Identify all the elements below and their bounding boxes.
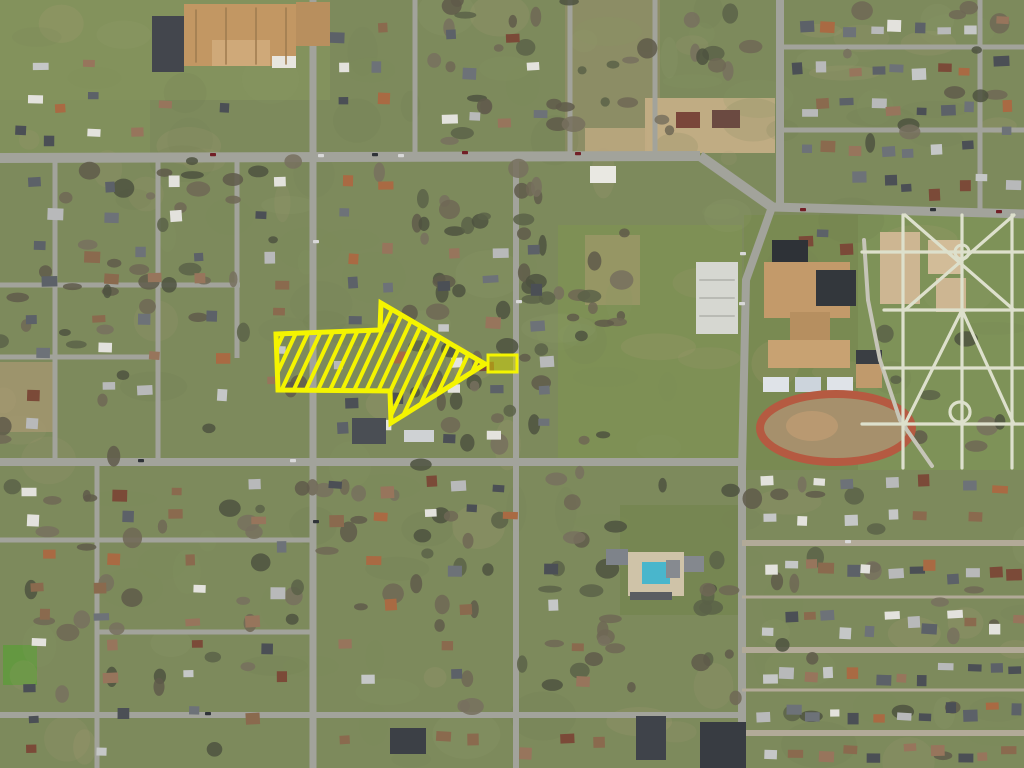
house [485,317,501,330]
tree [421,548,433,558]
house [274,177,286,187]
house [963,709,978,721]
tree [59,192,72,204]
house [576,676,590,687]
vehicle [290,459,296,462]
tree [851,1,873,20]
house [36,348,50,358]
house [779,667,794,679]
terrain-mottle [12,27,62,47]
house [792,62,803,75]
terrain-mottle [359,704,388,746]
house [446,29,456,39]
house [820,141,835,153]
house [55,104,66,113]
house [908,616,921,628]
house [22,488,37,497]
large-building-white-roof [272,56,296,68]
vehicle [800,208,806,211]
tree [461,670,473,687]
terrain-mottle [968,727,1024,746]
tree [899,124,920,139]
house [217,389,228,401]
house [843,27,856,37]
house [800,21,815,33]
tree [284,154,302,168]
house [937,27,951,34]
vehicle [398,154,404,157]
house [135,247,145,257]
terrain-mottle [658,372,677,402]
house [539,386,550,395]
house [96,748,106,756]
house [220,103,230,113]
tree [59,329,71,336]
house [938,63,952,72]
house [88,92,99,99]
house [183,670,193,677]
house [560,734,575,744]
house [385,599,398,611]
house [845,515,859,526]
tree [627,682,636,693]
house [992,485,1008,493]
tree [655,115,670,125]
house [372,61,382,72]
house [330,32,345,43]
house [1011,703,1021,715]
house [519,747,532,759]
tree [43,496,61,505]
house [572,643,584,651]
tree [202,424,215,434]
house [83,60,95,67]
tree [637,38,657,58]
house [968,664,982,672]
house [361,675,375,684]
terrain-mottle [573,367,639,388]
house [804,612,816,620]
tree [696,48,709,65]
house [255,211,266,219]
tree [78,240,98,250]
house [839,98,853,106]
house [912,68,927,80]
house [764,750,777,760]
tree [450,392,463,410]
house [168,509,182,519]
house [383,283,393,293]
tree [931,597,949,606]
house [931,745,945,756]
house [802,109,818,117]
dark-roof-building [390,728,426,754]
tree [157,218,168,232]
house [959,68,970,76]
tree [496,301,510,319]
tree [36,526,60,537]
house [867,753,881,762]
tree [770,489,788,501]
house [44,136,54,147]
tree [539,235,547,256]
house [112,490,127,502]
house [348,276,358,288]
house [963,481,977,491]
vehicle [575,152,581,155]
house [29,716,39,723]
tree [947,628,960,645]
house [873,714,884,722]
house [448,566,462,577]
tree [77,544,97,551]
house [107,553,120,565]
tree [684,12,700,28]
house [483,275,499,283]
house [840,479,853,489]
house [917,108,927,116]
tree [890,375,901,384]
house [901,184,912,192]
tree [63,283,82,290]
house [148,273,162,283]
house [843,745,857,754]
tree [579,436,590,445]
tree [513,214,534,226]
large-building-wing [296,2,330,46]
house [490,385,503,393]
tree [798,477,807,493]
house [756,712,770,723]
house [929,189,941,201]
tree [725,649,734,658]
house [849,146,862,156]
house [947,610,963,619]
tree [255,505,265,513]
house [467,733,479,745]
tree [219,500,241,517]
tree [538,586,562,593]
house [816,61,827,72]
house [107,639,118,650]
tree [556,102,575,112]
house [817,229,829,237]
terrain-mottle [479,56,530,81]
school-roof-dark [772,240,808,264]
house [887,20,901,32]
house [946,702,956,713]
tree [730,691,742,706]
dark-roof-building [352,418,386,444]
vehicle [318,154,324,157]
tree [562,116,586,132]
tree [971,46,982,54]
tree [186,157,198,165]
tree [607,61,620,69]
house [328,481,342,489]
house [888,568,904,579]
house [28,95,43,104]
house [848,713,859,725]
house [797,516,807,526]
tree [482,563,493,576]
house [366,556,381,565]
house [498,118,511,127]
tree [350,516,367,524]
pool-building [684,556,704,572]
house [15,126,26,136]
tree [535,343,549,356]
tree [420,233,429,245]
house [34,241,46,250]
house [818,563,834,574]
tree [876,325,894,343]
house [28,177,41,187]
house [438,324,449,331]
house [1013,615,1024,624]
house [329,515,344,527]
house [103,382,116,390]
house [889,64,903,73]
house [149,351,160,360]
house [896,674,906,683]
tree [410,574,422,593]
house [915,23,926,34]
tree [139,299,156,314]
store-building [676,112,700,128]
aerial-map-svg[interactable] [0,0,1024,768]
tree [708,58,726,73]
house [840,243,854,255]
tree [417,189,429,208]
bus-garage [827,377,853,392]
house [865,626,875,638]
house [449,248,460,259]
house [785,611,798,622]
house [849,68,862,77]
house [917,675,927,686]
house [251,517,266,525]
tree [964,586,984,593]
tree [414,529,432,542]
tree [949,10,966,19]
tree [610,270,634,289]
tree [146,192,155,199]
house [830,709,839,716]
tree [494,44,504,51]
pool-parking [630,592,672,600]
tree [237,323,250,342]
house [902,149,914,158]
house [185,554,195,565]
house [873,66,886,75]
tree [295,481,310,496]
house [436,731,451,742]
tree [844,487,864,504]
house [847,565,860,577]
house [816,98,829,109]
house [802,145,812,154]
tree [865,133,875,153]
tree [585,652,603,666]
house [897,712,912,720]
house [530,320,545,331]
house [426,475,437,487]
tree [564,494,581,510]
house [104,213,119,224]
tree [658,478,666,493]
house [122,511,134,523]
house [348,253,358,264]
house [451,480,467,491]
tree [965,440,988,451]
tree [229,271,237,287]
house [966,568,980,577]
house [349,316,362,324]
tree [691,654,710,671]
tree [771,572,783,590]
tree [426,304,449,320]
tree [121,588,142,607]
house [345,398,359,409]
house [33,63,49,70]
tree [545,473,567,486]
house [989,624,1000,635]
tree [117,370,130,380]
house [882,146,896,157]
house [169,175,180,187]
tree [107,446,120,467]
tree [517,227,531,240]
tree [4,479,21,494]
house [27,514,40,526]
house [382,243,393,254]
house [938,663,954,670]
terrain-mottle [661,37,678,79]
tree [588,302,598,314]
house [469,112,480,121]
bus-garage [795,377,821,392]
house [87,129,100,137]
tree [578,290,602,303]
house [544,564,558,575]
house [378,181,393,189]
tree [722,3,738,23]
tree [579,584,603,597]
house [261,643,273,654]
tree [315,547,338,555]
parking-lot-dark [152,16,184,72]
aerial-map-viewport[interactable] [0,0,1024,768]
light-roof-building [404,430,434,442]
tree [248,166,268,178]
tree [434,619,444,632]
school-building [790,312,830,340]
house [275,281,289,290]
house [339,97,349,104]
tree [446,61,456,72]
tree [508,159,528,178]
terrain-mottle [333,99,381,143]
tree [563,531,586,544]
large-building-section [212,40,270,66]
tree [251,553,271,571]
house [32,638,47,646]
tree [596,431,610,438]
tree [245,525,262,539]
terrain-mottle [574,17,642,46]
house [876,675,891,686]
house [977,752,987,761]
house [1001,746,1016,754]
house [137,385,153,395]
parcel-highlight [488,355,517,372]
house [378,93,391,105]
house [931,144,943,155]
house [947,574,959,585]
house [991,663,1003,673]
house [378,23,388,33]
house [492,485,504,493]
pool-building [666,560,680,578]
house [270,587,285,599]
tree [460,434,474,452]
house [94,583,107,594]
house [206,311,217,322]
house [47,208,63,220]
house [823,667,833,679]
house [1006,180,1022,190]
house [343,175,353,186]
house [763,514,776,522]
house [538,419,549,426]
vehicle [845,540,851,543]
tree [286,614,299,625]
house [1006,569,1022,581]
house [964,25,977,34]
terrain-mottle [424,667,447,688]
house [540,356,555,368]
house [760,476,773,486]
tree [463,533,474,549]
tree [743,488,763,509]
tree [435,595,450,615]
house [820,21,835,33]
house [380,486,394,498]
tree [598,635,611,646]
house [506,34,520,43]
church-building [700,722,746,768]
tree [74,610,91,628]
tree [477,98,492,114]
house [904,743,917,751]
house [27,390,40,402]
house [273,308,285,316]
house [30,583,43,592]
house [92,315,105,323]
tree [693,600,712,616]
house [159,100,172,108]
terrain-mottle [901,101,969,118]
tree [154,678,165,696]
house [460,604,473,615]
vehicle [739,302,745,305]
main-road-west [0,156,700,158]
house [534,110,548,118]
tree [83,490,91,502]
tree [504,405,517,417]
tree [291,579,304,595]
